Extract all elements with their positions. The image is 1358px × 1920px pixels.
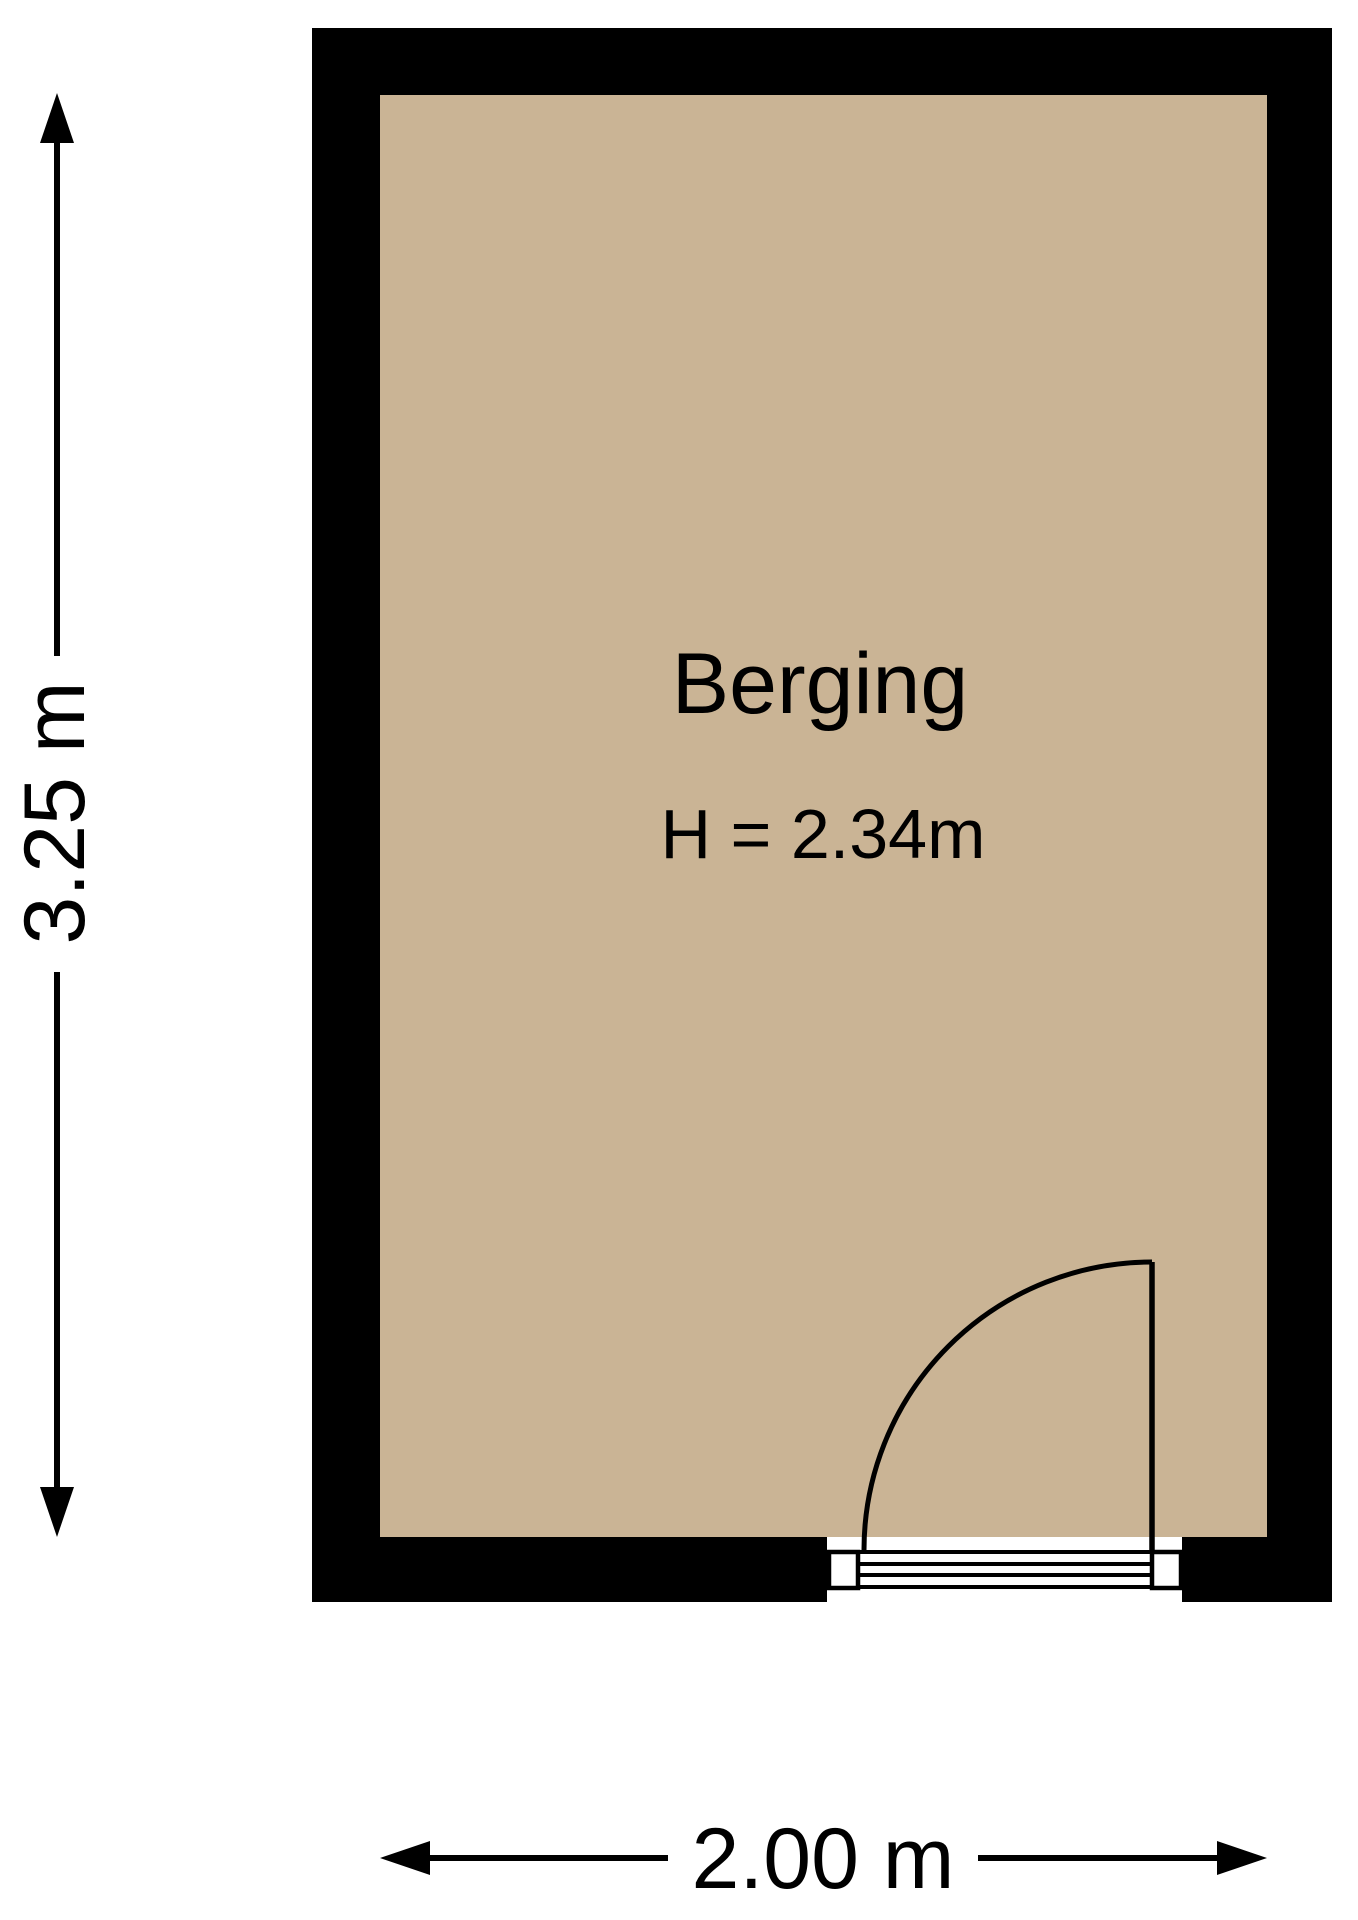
room-height-label: H = 2.34m: [661, 795, 986, 873]
arrow-down-icon: [40, 1487, 74, 1537]
room-label: Berging: [672, 636, 968, 732]
horizontal-dimension: 2.00 m: [380, 1811, 1267, 1907]
horizontal-dimension-label: 2.00 m: [692, 1811, 955, 1907]
arrow-right-icon: [1217, 1841, 1267, 1875]
door-post-left: [829, 1552, 858, 1588]
arrow-left-icon: [380, 1841, 430, 1875]
vertical-dimension-label: 3.25 m: [7, 682, 103, 945]
floorplan-svg: Berging H = 2.34m 3.25 m 2.00 m: [0, 0, 1358, 1920]
vertical-dimension: 3.25 m: [7, 93, 103, 1537]
door-threshold: [858, 1552, 1152, 1587]
arrow-up-icon: [40, 93, 74, 143]
door-post-right: [1152, 1552, 1181, 1588]
floorplan-canvas: Berging H = 2.34m 3.25 m 2.00 m: [0, 0, 1358, 1920]
